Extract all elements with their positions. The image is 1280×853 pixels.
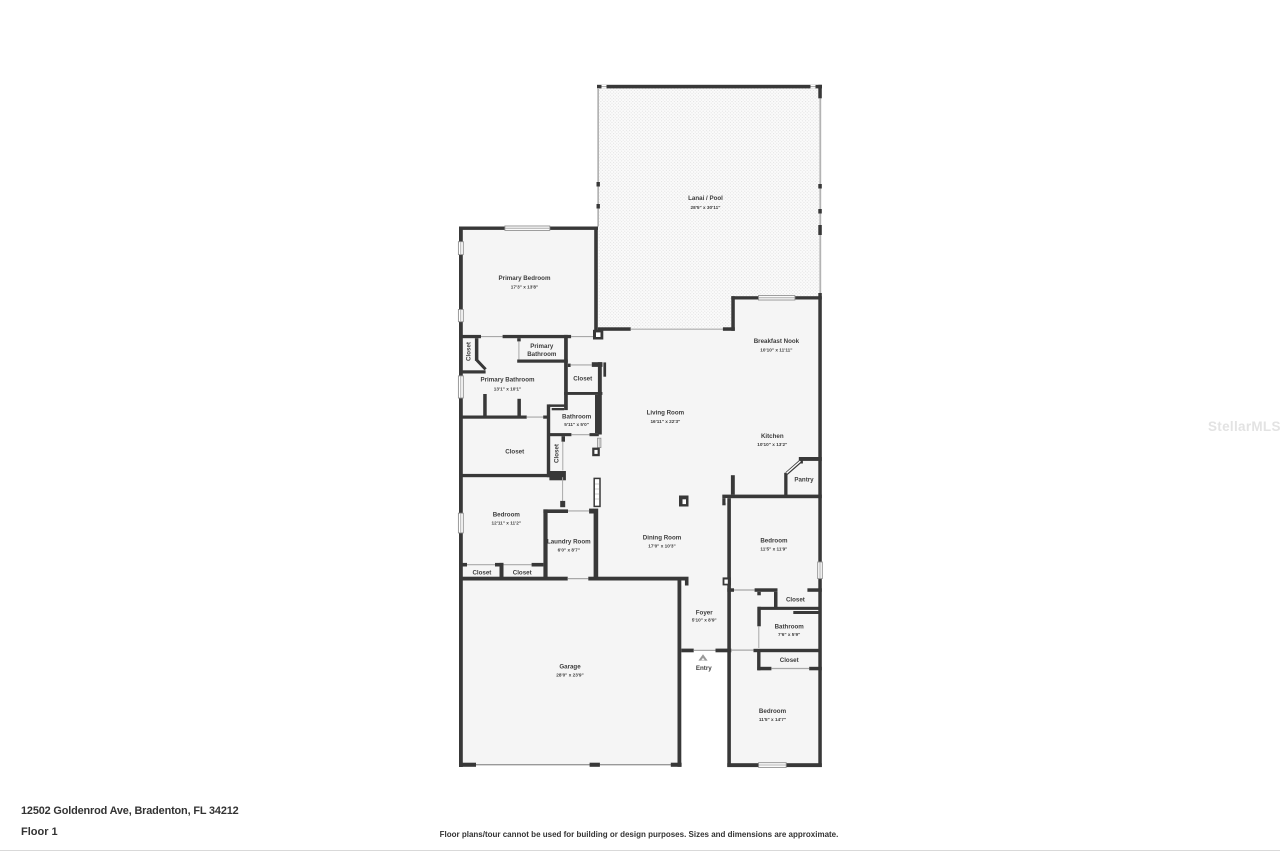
svg-text:Lanai / Pool: Lanai / Pool <box>688 195 723 202</box>
svg-text:16'11" x 22'3": 16'11" x 22'3" <box>650 419 680 424</box>
svg-text:11'5" x 14'7": 11'5" x 14'7" <box>759 717 786 722</box>
svg-text:28'5" x 30'11": 28'5" x 30'11" <box>691 205 721 210</box>
svg-text:Closet: Closet <box>554 444 561 463</box>
svg-text:Entry: Entry <box>696 665 712 672</box>
svg-text:Bathroom: Bathroom <box>775 624 805 631</box>
svg-text:Closet: Closet <box>513 570 532 577</box>
svg-text:Bedroom: Bedroom <box>760 538 788 545</box>
svg-text:13'1" x 10'1": 13'1" x 10'1" <box>494 387 522 392</box>
svg-text:7'6" x 5'9": 7'6" x 5'9" <box>778 632 800 637</box>
svg-text:Living Room: Living Room <box>647 410 685 417</box>
svg-text:Closet: Closet <box>786 597 805 604</box>
svg-text:Closet: Closet <box>466 342 473 361</box>
svg-text:5'10" x 8'9": 5'10" x 8'9" <box>692 618 717 623</box>
svg-text:Kitchen: Kitchen <box>761 433 784 440</box>
svg-text:10'10" x 13'2": 10'10" x 13'2" <box>757 442 787 447</box>
svg-text:Primary Bathroom: Primary Bathroom <box>481 377 535 384</box>
svg-text:28'0" x 23'9": 28'0" x 23'9" <box>556 673 584 678</box>
svg-text:5'11" x 5'0": 5'11" x 5'0" <box>564 422 589 427</box>
svg-text:Closet: Closet <box>573 376 592 383</box>
svg-text:11'5" x 11'9": 11'5" x 11'9" <box>760 547 787 552</box>
svg-text:6'0" x 8'7": 6'0" x 8'7" <box>558 548 580 553</box>
svg-text:Garage: Garage <box>559 664 581 671</box>
svg-text:Primary: Primary <box>530 343 554 350</box>
svg-text:Bathroom: Bathroom <box>562 414 592 421</box>
svg-text:Primary Bedroom: Primary Bedroom <box>499 275 551 282</box>
svg-text:Bedroom: Bedroom <box>493 512 521 519</box>
svg-text:10'10" x 11'11": 10'10" x 11'11" <box>760 348 792 353</box>
svg-text:17'0" x 10'3": 17'0" x 10'3" <box>648 544 676 549</box>
svg-text:Breakfast Nook: Breakfast Nook <box>754 338 800 345</box>
svg-text:Bedroom: Bedroom <box>759 708 787 715</box>
svg-text:Laundry Room: Laundry Room <box>547 539 591 546</box>
svg-text:17'3" x 13'8": 17'3" x 13'8" <box>511 285 539 290</box>
svg-text:Dining Room: Dining Room <box>643 535 682 542</box>
svg-text:Closet: Closet <box>780 657 799 664</box>
svg-text:Closet: Closet <box>472 570 491 577</box>
svg-text:12'11" x 11'2": 12'11" x 11'2" <box>491 521 521 526</box>
svg-text:Pantry: Pantry <box>794 477 814 484</box>
svg-text:Foyer: Foyer <box>696 610 713 617</box>
svg-text:Closet: Closet <box>505 449 524 456</box>
svg-text:Bathroom: Bathroom <box>527 351 557 358</box>
